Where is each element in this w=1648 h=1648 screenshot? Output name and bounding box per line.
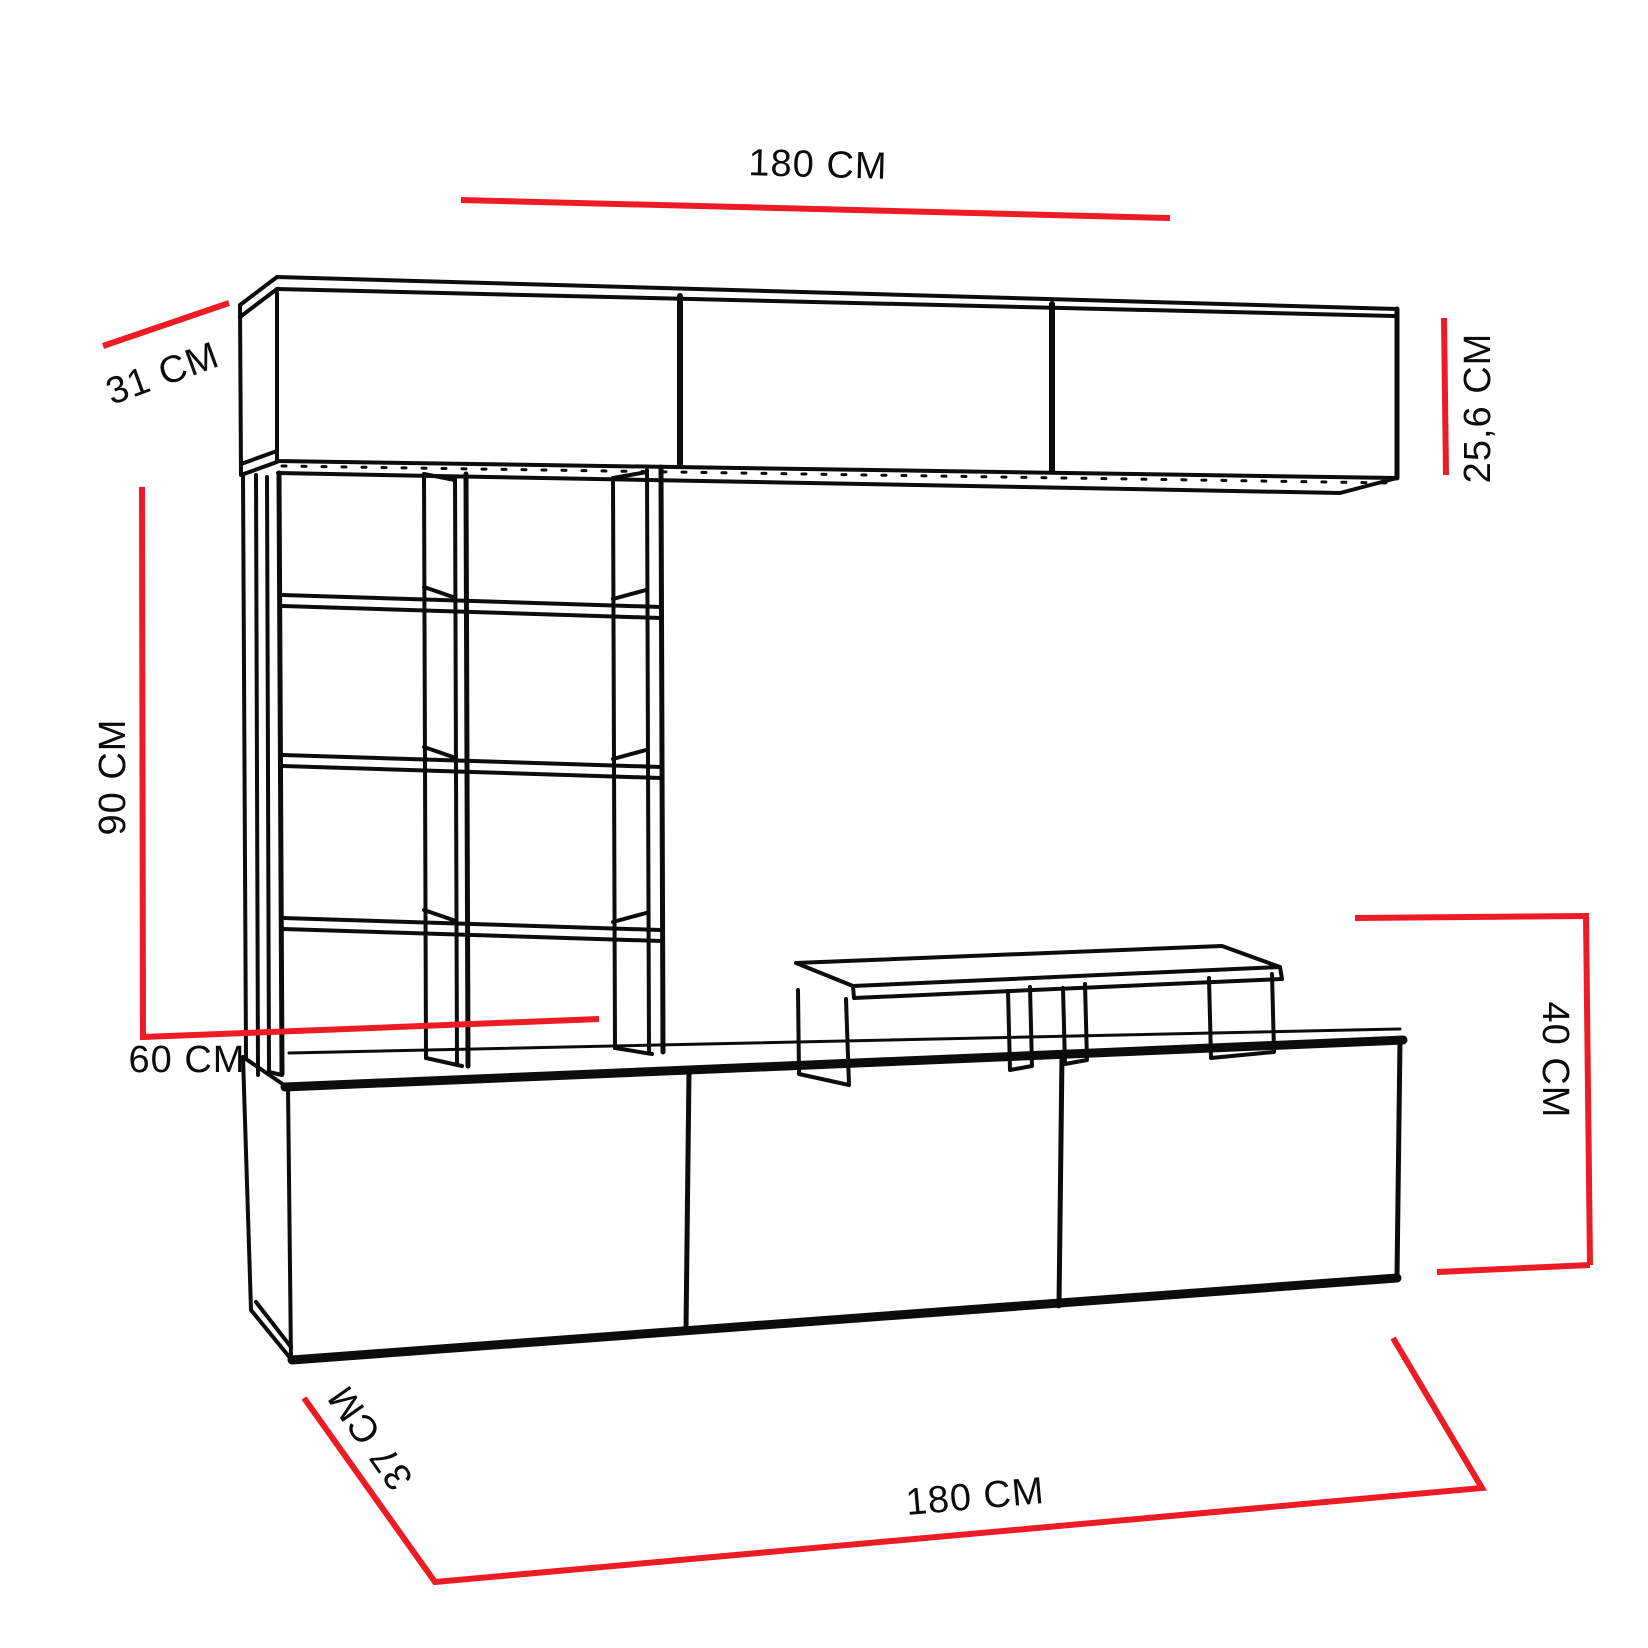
dim-line-top-height [1444,318,1446,475]
top-cabinet [240,277,1397,493]
top-cabinet-side-panel [240,305,277,475]
label-base-cabinet-height: 40 CM [1534,1002,1576,1119]
label-top-cabinet-height: 25,6 CM [1457,333,1499,484]
top-cabinet-door-dividers [680,296,1052,471]
tv-riser-left-panel [798,990,849,1085]
base-cabinet-left-side-panel [243,1057,291,1359]
label-top-cabinet-depth: 31 CM [101,334,225,413]
label-base-cabinet-width: 180 CM [904,1470,1046,1524]
shelf-2 [283,747,661,778]
dimension-drawing-page: 180 CM 31 CM 25,6 CM 90 CM 60 CM 40 CM 3… [0,0,1648,1648]
dim-fork-base-footprint [304,1338,1482,1582]
base-cabinet-front-left-edge [288,1087,291,1360]
top-cabinet-top-edges [240,277,1397,317]
wall-unit-diagram: 180 CM 31 CM 25,6 CM 90 CM 60 CM 40 CM 3… [0,0,1648,1648]
label-shelf-column-width: 60 CM [129,1039,246,1081]
top-cabinet-front-frame [277,289,1397,493]
dimension-lines [103,200,1590,1582]
label-shelf-column-height: 90 CM [92,719,134,836]
shelf-1 [283,587,661,618]
dim-line-top-width [461,200,1170,218]
shelf-3 [283,910,661,941]
base-cabinet-right-edge [1397,1040,1400,1278]
shelf-column [243,467,663,1075]
base-cabinet-door-dividers [686,1055,1062,1330]
label-top-cabinet-width: 180 CM [748,142,888,188]
base-cabinet-bottom-edge [292,1278,1397,1360]
